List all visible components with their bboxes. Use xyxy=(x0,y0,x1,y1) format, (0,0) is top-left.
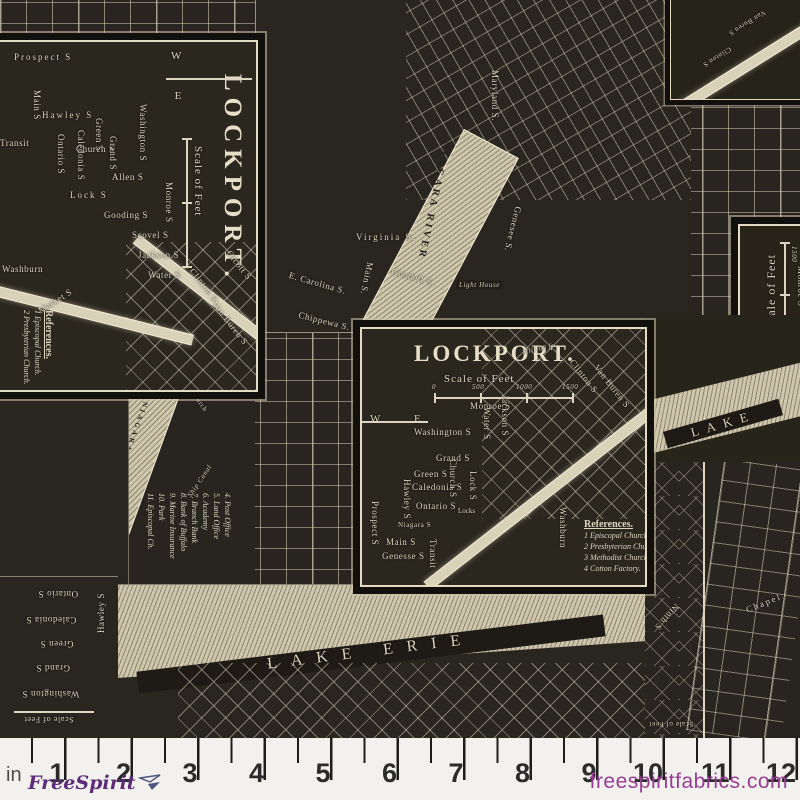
reference-item: 5. Land Office xyxy=(211,493,222,559)
street-label: Caledonia S xyxy=(26,615,76,625)
street-label: Jackson S xyxy=(500,395,510,436)
reference-item: 3 Methodist Church. xyxy=(584,552,647,563)
street-label: Virginia S. xyxy=(356,232,417,242)
reference-item: 1 Episcopal Church. xyxy=(32,310,43,385)
reference-item: 9. Marine Insurance xyxy=(167,493,178,559)
ruler-unit-label: in xyxy=(6,764,22,787)
references-list: References. 1 Episcopal Church. 2 Presby… xyxy=(584,519,647,574)
compass-east: E xyxy=(175,90,182,102)
compass-west: W xyxy=(171,50,182,62)
compass-west: W xyxy=(370,413,381,425)
reference-item: 2 Presbyterian Church. xyxy=(21,310,32,385)
freespirit-logo: FreeSpirit xyxy=(28,772,164,794)
references-list: 4. Post Office 5. Land Office 6. Academy… xyxy=(145,493,233,559)
ruler-number: 7 xyxy=(424,758,464,789)
scale-tick-label: 500 xyxy=(472,383,484,391)
references-list: References. 1 Episcopal Church. 2 Presby… xyxy=(21,310,54,385)
reference-item: 10. Park xyxy=(156,493,167,559)
lake-erie-panel: LAKE ERIE xyxy=(118,584,645,738)
lighthouse-label: Light House xyxy=(456,280,503,290)
reference-item: 11. Episcopal Ch. xyxy=(145,493,156,559)
locks-label: Locks xyxy=(458,507,475,515)
reference-item: 7. Branch Bank xyxy=(189,493,200,559)
street-label: Genesee S. xyxy=(503,205,524,252)
reference-item: 6. Academy xyxy=(200,493,211,559)
scale-tick-label: 0 xyxy=(432,383,436,391)
street-grid xyxy=(178,663,645,738)
reference-item: 2 Presbyterian Church. xyxy=(584,541,647,552)
church-label: Church xyxy=(189,389,209,413)
street-label: Main S xyxy=(32,90,42,120)
rotated-lockport-panel: Ontario S Caledonia S Green S Grand S Wa… xyxy=(0,576,118,738)
street-label: Water S xyxy=(482,407,492,440)
street-label: Maryland S. xyxy=(490,70,500,121)
street-label: Grand S xyxy=(108,136,118,170)
street-label: Transit xyxy=(428,539,438,568)
references-title: References. xyxy=(43,310,54,385)
reference-item: 4. Post Office xyxy=(222,493,233,559)
scale-tick xyxy=(572,393,574,403)
scale-tick xyxy=(780,294,790,296)
scale-tick-label: 1000 xyxy=(516,383,532,391)
grid-fragment-panel xyxy=(0,388,128,579)
street-label: Lock S xyxy=(468,471,478,500)
street-label: Scovel S xyxy=(132,230,169,240)
street-label: Transit xyxy=(0,138,29,148)
scale-tick-label: 1500 xyxy=(790,246,798,262)
street-label: Ontario S xyxy=(416,501,456,511)
corner-map-panel: Van Buren S Clinton S xyxy=(670,0,800,100)
street-label: E. Carolina S. xyxy=(288,270,347,296)
street-label: Ontario S xyxy=(38,589,78,599)
street-label: Hawley S xyxy=(42,110,93,120)
street-label: Church S xyxy=(448,459,458,498)
street-label: Prospect S xyxy=(370,501,380,545)
scale-tick xyxy=(182,266,192,268)
reference-item: 1 Episcopal Church. xyxy=(584,530,647,541)
buffalo-map-panel: NIAGARA RIVER Virginia S. E. Carolina S.… xyxy=(255,0,691,333)
scale-tick xyxy=(182,138,192,140)
street-label: Caledonia S xyxy=(76,130,86,180)
street-label: Clinton S xyxy=(701,45,732,69)
street-label: Monroe S xyxy=(164,182,174,223)
lake-fragment-panel: LAKE xyxy=(645,315,800,463)
street-label: Washington S xyxy=(414,427,471,437)
freespirit-logo-glyph xyxy=(138,774,164,792)
ruler-number: 6 xyxy=(357,758,397,789)
lockport-map-panel-center: LOCKPORT. Scale of Feet 0 500 1000 1500 … xyxy=(360,327,647,587)
scale-tick-label: 1500 xyxy=(562,383,578,391)
fabric-print: NIAGARA RIVER Virginia S. E. Carolina S.… xyxy=(0,0,800,738)
reference-item: 4 Cotton Factory. xyxy=(584,563,647,574)
street-label: Green S xyxy=(40,639,73,649)
street-label: Hawley S xyxy=(96,593,106,633)
street-label: Jackson S xyxy=(138,250,179,260)
scale-label: Scale of Feet xyxy=(649,720,693,728)
scale-tick xyxy=(182,202,192,204)
street-label: Lock S xyxy=(70,190,108,200)
street-label: Genesse S xyxy=(382,551,425,561)
website-link: freespiritfabrics.com xyxy=(590,770,788,794)
street-label: Prospect S xyxy=(14,52,72,62)
compass-line xyxy=(166,78,252,80)
compass-line xyxy=(362,421,428,423)
street-label: Van Buren S xyxy=(727,8,767,37)
street-label: Grand S xyxy=(36,663,70,673)
ruler-number: 4 xyxy=(224,758,264,789)
ruler-number: 5 xyxy=(291,758,331,789)
lockport-map-panel-topleft: LOCKPORT. Scale of Feet W E Prospect S M… xyxy=(0,40,258,392)
ruler-number: 8 xyxy=(490,758,530,789)
fabric-swatch-photo: NIAGARA RIVER Virginia S. E. Carolina S.… xyxy=(0,0,800,800)
street-label: Main S. xyxy=(359,261,376,295)
street-label: Main S xyxy=(386,537,416,547)
scale-tick xyxy=(780,242,790,244)
street-label: Allen S xyxy=(112,172,143,182)
street-label: Hawley S xyxy=(402,479,412,519)
references-title: References. xyxy=(584,519,647,530)
street-label: Washington S xyxy=(22,689,79,699)
street-label: Green S xyxy=(414,469,447,479)
scale-tick xyxy=(434,393,436,403)
street-label: Niagara S xyxy=(398,521,431,529)
bottom-right-panel: Ninth S Chapel Scale of Feet xyxy=(645,462,800,738)
street-label: Washington S xyxy=(138,104,148,161)
scale-label: Scale of Feet xyxy=(192,146,204,216)
freespirit-logo-text: FreeSpirit xyxy=(28,772,136,794)
street-label: Washburn xyxy=(2,264,43,274)
ruler: in 1 2 3 4 5 6 7 8 9 10 11 12 FreeSpirit… xyxy=(0,738,800,800)
street-label: Washburn xyxy=(558,507,568,548)
scale-bar xyxy=(14,711,94,713)
scale-label: Scale of Feet xyxy=(24,715,74,724)
street-label: Monroe S xyxy=(796,266,800,307)
scale-tick xyxy=(526,393,528,403)
reference-item: 8. Bank of Buffalo xyxy=(178,493,189,559)
street-label: Gooding S xyxy=(104,210,148,220)
street-label: Ontario S xyxy=(56,134,66,174)
street-label: Water S xyxy=(148,270,181,280)
compass-east: E xyxy=(414,413,421,425)
street-label: Chippewa S. xyxy=(298,310,351,332)
